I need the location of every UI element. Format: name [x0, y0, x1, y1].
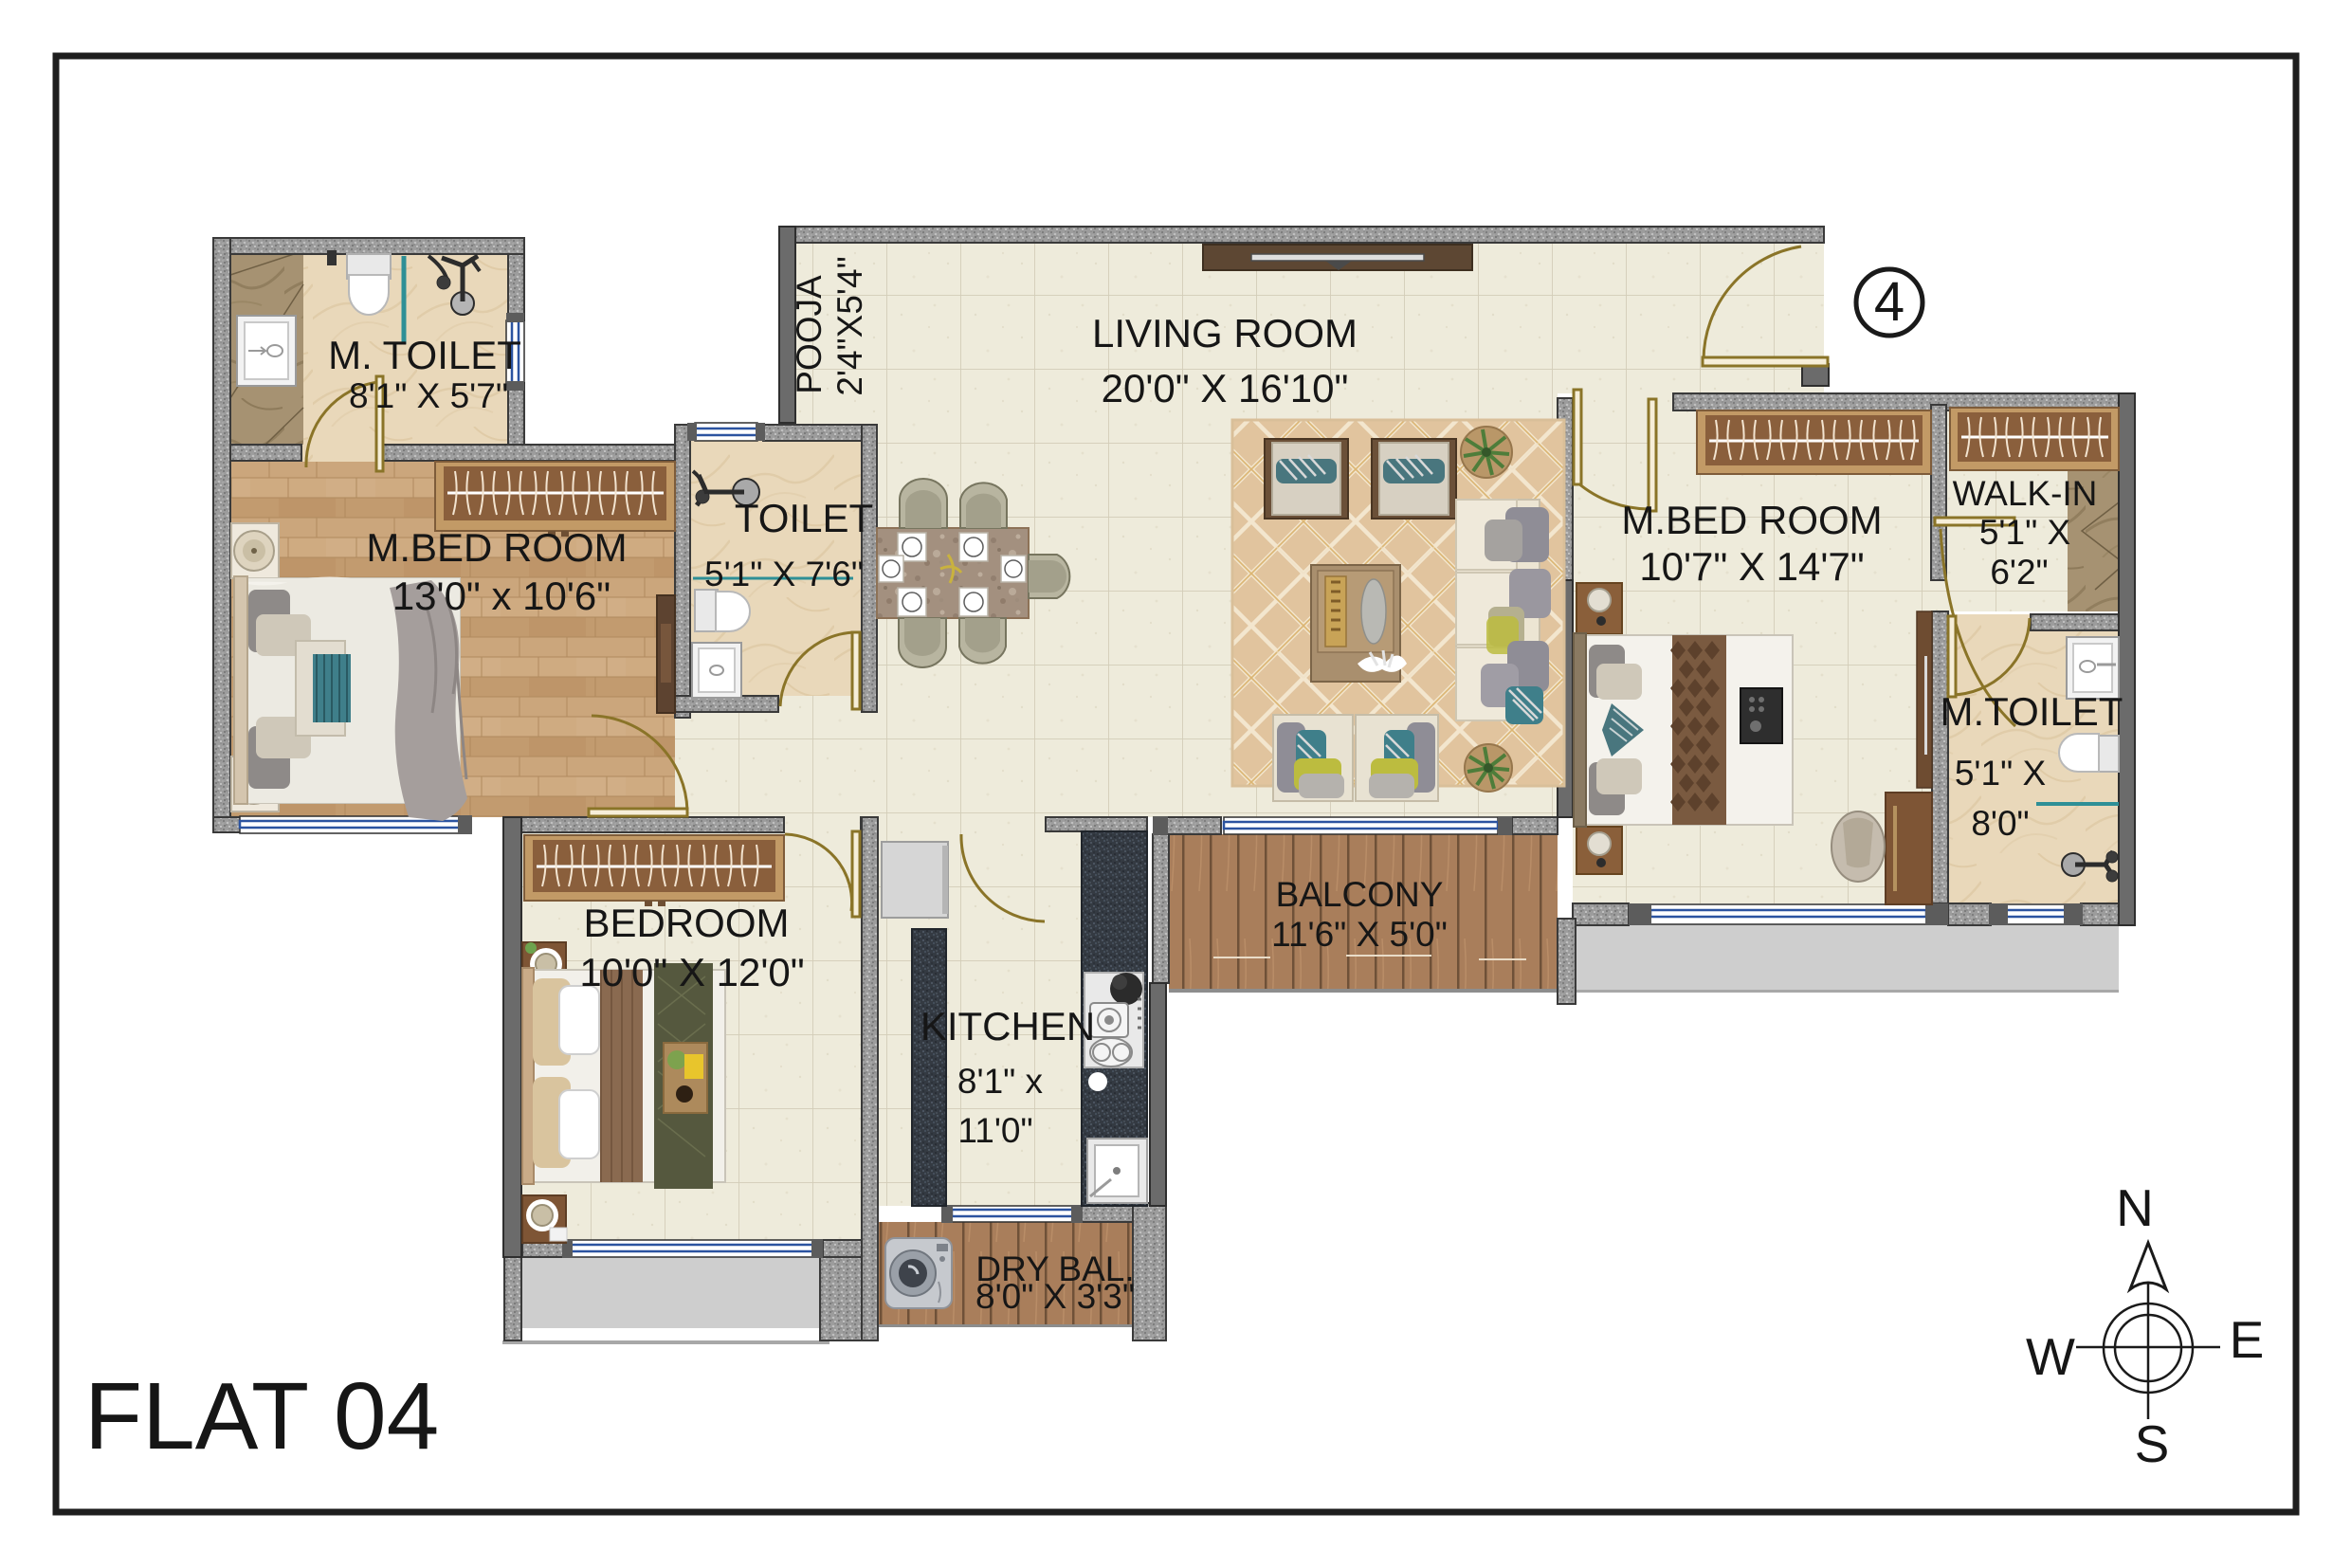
svg-text:6'2": 6'2" [1990, 553, 2048, 592]
svg-text:BALCONY: BALCONY [1276, 875, 1444, 914]
svg-text:M.BED ROOM: M.BED ROOM [1621, 498, 1882, 542]
svg-text:4: 4 [1874, 271, 1904, 333]
svg-text:M. TOILET: M. TOILET [328, 333, 521, 377]
svg-text:10'0" X 12'0": 10'0" X 12'0" [579, 950, 804, 994]
svg-text:10'7" X 14'7": 10'7" X 14'7" [1639, 544, 1864, 589]
svg-text:5'1" X: 5'1" X [1979, 513, 2070, 552]
svg-text:5'1" X: 5'1" X [1955, 754, 2046, 793]
svg-text:M.BED ROOM: M.BED ROOM [366, 525, 627, 570]
svg-text:8'1" x: 8'1" x [957, 1062, 1044, 1101]
svg-text:8'0" X 3'3": 8'0" X 3'3" [975, 1277, 1135, 1316]
svg-text:5'1" X 7'6": 5'1" X 7'6" [704, 555, 864, 593]
svg-text:2'4"X5'4": 2'4"X5'4" [830, 256, 869, 395]
svg-text:LIVING ROOM: LIVING ROOM [1092, 311, 1358, 356]
svg-text:BEDROOM: BEDROOM [583, 901, 789, 945]
svg-text:8'0": 8'0" [1971, 804, 2029, 843]
svg-text:13'0" x 10'6": 13'0" x 10'6" [392, 574, 611, 618]
svg-text:8'1" X 5'7": 8'1" X 5'7" [349, 376, 508, 415]
svg-text:E: E [2230, 1310, 2265, 1369]
svg-text:S: S [2135, 1414, 2170, 1473]
svg-text:11'6" X 5'0": 11'6" X 5'0" [1271, 915, 1448, 954]
svg-text:FLAT 04: FLAT 04 [84, 1363, 439, 1469]
svg-text:POOJA: POOJA [790, 275, 829, 394]
svg-text:M.TOILET: M.TOILET [1941, 689, 2123, 734]
svg-text:W: W [2026, 1327, 2075, 1386]
svg-text:KITCHEN: KITCHEN [920, 1004, 1095, 1048]
svg-text:N: N [2116, 1178, 2154, 1237]
svg-text:TOILET: TOILET [735, 496, 873, 540]
svg-text:20'0" X 16'10": 20'0" X 16'10" [1102, 366, 1349, 410]
svg-text:11'0": 11'0" [957, 1111, 1032, 1150]
svg-text:WALK-IN: WALK-IN [1953, 474, 2098, 513]
